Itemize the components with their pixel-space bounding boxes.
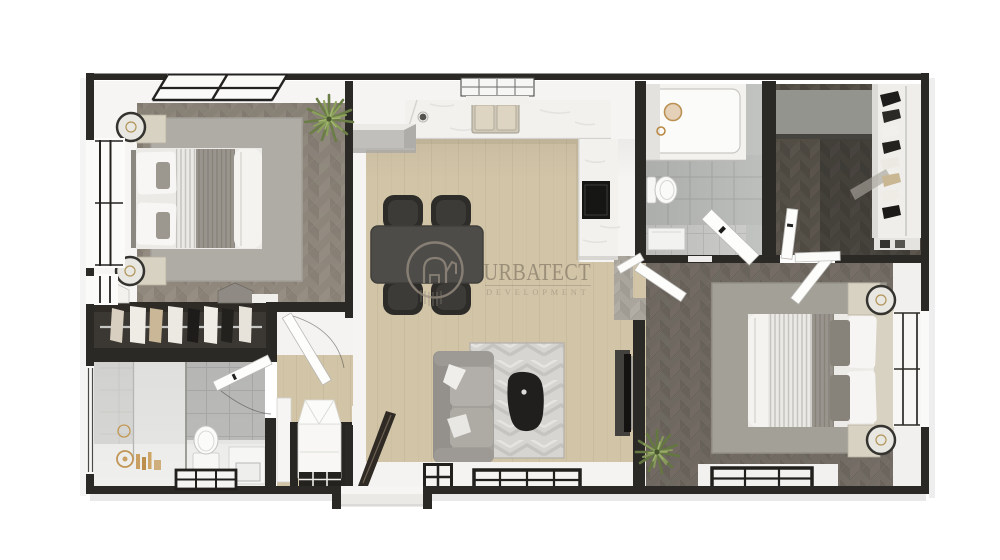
svg-text:URBATECT: URBATECT [484,258,592,285]
svg-text:DEVELOPMENT: DEVELOPMENT [486,287,590,297]
